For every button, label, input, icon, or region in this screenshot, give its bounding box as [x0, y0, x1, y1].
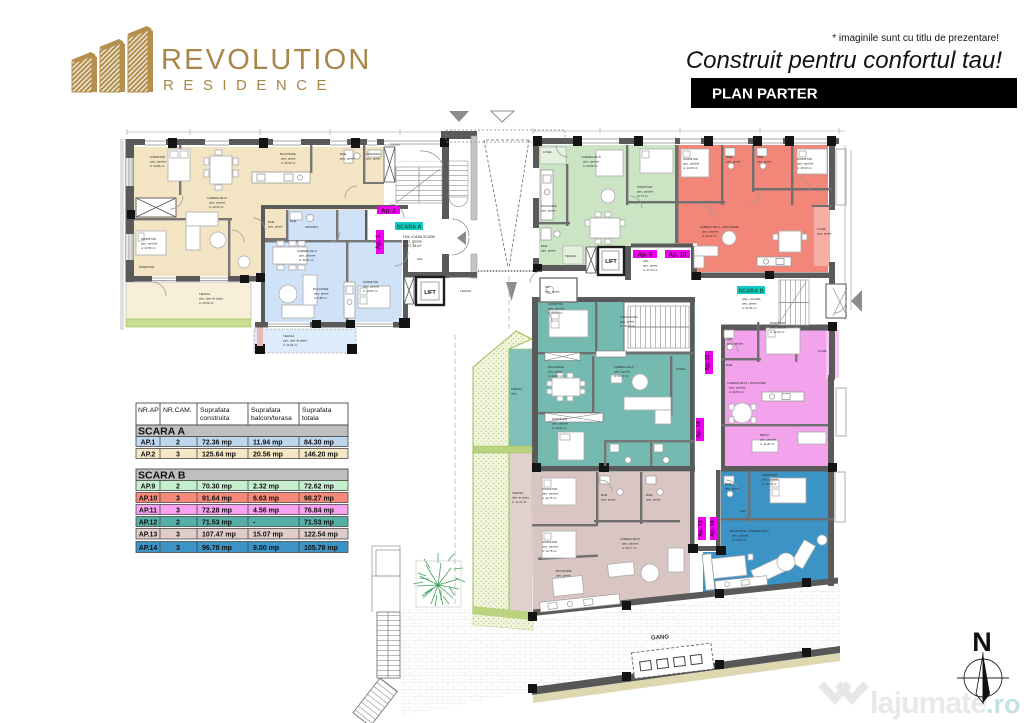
svg-text:parc. parchet: parc. parchet [150, 160, 167, 164]
svg-text:.ro: .ro [986, 689, 1021, 719]
svg-text:BUCATARIE + CAMERA DE ZI: BUCATARIE + CAMERA DE ZI [730, 529, 769, 533]
svg-text:BUCATARIE: BUCATARIE [280, 152, 296, 156]
svg-text:parc. gresie: parc. gresie [541, 249, 556, 253]
svg-text:Ap. 1: Ap. 1 [376, 234, 382, 249]
svg-text:A: 27.48 m²: A: 27.48 m² [403, 244, 422, 248]
svg-text:DORMITOR: DORMITOR [150, 155, 165, 159]
svg-text:15.07 mp: 15.07 mp [253, 532, 283, 539]
svg-text:A: 21.96 m²: A: 21.96 m² [742, 306, 757, 310]
svg-text:3: 3 [176, 495, 180, 502]
svg-text:A: 12.33 m²: A: 12.33 m² [770, 330, 785, 334]
svg-text:107.47 mp: 107.47 mp [202, 532, 236, 539]
svg-text:SCARA A: SCARA A [138, 426, 185, 438]
svg-text:72.28 mp: 72.28 mp [202, 507, 232, 514]
svg-text:DORMITOR: DORMITOR [141, 237, 156, 241]
svg-text:AP.13: AP.13 [139, 532, 158, 539]
svg-text:A: 46.42 m²: A: 46.42 m² [702, 234, 717, 238]
svg-text:BAIE: BAIE [601, 493, 608, 497]
svg-text:BUCATARIE: BUCATARIE [541, 204, 557, 208]
svg-text:parc. parchet: parc. parchet [732, 534, 749, 538]
svg-text:A: 40.33 m²: A: 40.33 m² [209, 205, 224, 209]
svg-text:CAMERA DE ZI + BUCATARIE: CAMERA DE ZI + BUCATARIE [700, 225, 739, 229]
svg-text:A: 11.94 m²: A: 11.94 m² [283, 343, 297, 347]
svg-text:SCARA A: SCARA A [396, 225, 421, 231]
svg-text:parc. gresie: parc. gresie [366, 157, 381, 161]
svg-text:98.27 mp: 98.27 mp [304, 495, 334, 502]
svg-text:parc. parchet: parc. parchet [727, 342, 744, 346]
svg-text:A: 12.86 m²: A: 12.86 m² [150, 164, 165, 168]
svg-text:Ap. 14: Ap. 14 [710, 519, 716, 536]
svg-text:AP.1: AP.1 [141, 439, 156, 446]
svg-text:NR.CAM.: NR.CAM. [163, 407, 192, 414]
svg-text:LOGIE: LOGIE [818, 349, 827, 353]
svg-text:A: 13.81 m²: A: 13.81 m² [363, 289, 378, 293]
svg-text:parc. parchet: parc. parchet [797, 162, 814, 166]
svg-text:parc. parchet: parc. parchet [622, 542, 639, 546]
svg-text:2.32 mp: 2.32 mp [253, 483, 279, 490]
svg-text:DRESSING: DRESSING [366, 152, 381, 156]
svg-text:HOL: HOL [417, 257, 423, 261]
svg-text:parc. gresie: parc. gresie [403, 240, 422, 244]
svg-text:* imaginile sunt cu titlu de p: * imaginile sunt cu titlu de prezentare! [832, 33, 999, 44]
svg-text:96.78 mp: 96.78 mp [202, 545, 232, 552]
svg-text:parc. parchet: parc. parchet [760, 438, 777, 442]
svg-text:parc. gresie: parc. gresie [340, 157, 355, 161]
svg-text:A: 15.40 m²: A: 15.40 m² [797, 166, 812, 170]
svg-text:72.62 mp: 72.62 mp [304, 483, 334, 490]
svg-text:TERASA: TERASA [511, 387, 522, 391]
svg-text:AP.14: AP.14 [139, 545, 158, 552]
svg-text:DORMITOR: DORMITOR [542, 540, 557, 544]
svg-text:parc. gresie: parc. gresie [643, 264, 658, 268]
svg-text:2: 2 [176, 519, 180, 526]
svg-text:parc. gresie: parc. gresie [545, 290, 560, 294]
svg-text:A: 12.65 m²: A: 12.65 m² [683, 166, 698, 170]
svg-text:20.56 mp: 20.56 mp [253, 451, 283, 458]
svg-text:dale de piatra: dale de piatra [512, 496, 529, 500]
svg-text:A: 29.55 m²: A: 29.55 m² [729, 390, 744, 394]
svg-text:3: 3 [176, 545, 180, 552]
svg-text:CAMERA DE ZI: CAMERA DE ZI [207, 196, 227, 200]
svg-text:BAIE: BAIE [340, 152, 347, 156]
svg-text:HOL: HOL [740, 509, 746, 513]
svg-text:AP.12: AP.12 [139, 519, 158, 526]
svg-text:Suprafata: Suprafata [200, 407, 230, 414]
svg-text:A: 36.77 m²: A: 36.77 m² [622, 546, 637, 550]
svg-text:A: 54.82 m²: A: 54.82 m² [732, 538, 747, 542]
svg-text:parc. parchet: parc. parchet [209, 201, 226, 205]
svg-text:A: 15.74 m²: A: 15.74 m² [762, 482, 777, 486]
svg-text:parc. gresie: parc. gresie [541, 209, 556, 213]
svg-text:PLAN PARTER: PLAN PARTER [712, 86, 818, 103]
svg-text:SCARA B: SCARA B [738, 289, 763, 295]
svg-text:parc. gresie: parc. gresie [725, 487, 740, 491]
svg-text:Ap. 11: Ap. 11 [705, 354, 711, 370]
svg-text:A: 39.01 m²: A: 39.01 m² [299, 258, 314, 262]
svg-text:NR.AP: NR.AP [138, 407, 159, 414]
svg-text:DORMITOR: DORMITOR [139, 265, 154, 269]
svg-text:parc. gresie: parc. gresie [268, 225, 283, 229]
svg-text:84.30 mp: 84.30 mp [304, 439, 334, 446]
svg-text:parc. gresie: parc. gresie [314, 292, 329, 296]
svg-text:Ap. 10: Ap. 10 [668, 253, 687, 259]
svg-text:BAIE: BAIE [268, 220, 275, 224]
svg-text:BAIE: BAIE [646, 493, 653, 497]
svg-text:parc. gresie: parc. gresie [548, 370, 563, 374]
svg-text:HOL: HOL [727, 337, 733, 341]
svg-text:Ap. 9: Ap. 9 [638, 253, 653, 259]
svg-text:CAMERA DE ZI: CAMERA DE ZI [614, 365, 634, 369]
svg-text:DORMITOR: DORMITOR [770, 321, 785, 325]
svg-text:11.73 m²: 11.73 m² [637, 194, 648, 198]
svg-text:3: 3 [176, 532, 180, 539]
svg-text:CAMERA DE ZI: CAMERA DE ZI [581, 155, 601, 159]
svg-text:72.36 mp: 72.36 mp [202, 439, 232, 446]
svg-text:parc. gresie: parc. gresie [620, 320, 635, 324]
svg-text:lajumate: lajumate [870, 685, 987, 720]
svg-text:BAIE: BAIE [726, 155, 733, 159]
svg-text:BUCATARIE: BUCATARIE [548, 365, 564, 369]
svg-text:parc. parchet: parc. parchet [141, 242, 158, 246]
svg-text:BUCATARIE: BUCATARIE [313, 287, 329, 291]
svg-text:SCARA B: SCARA B [138, 470, 186, 482]
svg-text:LOGIE: LOGIE [543, 150, 552, 154]
svg-text:HOL+CASA SCARII: HOL+CASA SCARII [403, 235, 435, 239]
svg-text:TERASA: TERASA [283, 334, 294, 338]
svg-text:TERASA: TERASA [512, 491, 523, 495]
svg-text:parc. parchet: parc. parchet [729, 386, 746, 390]
svg-text:TERASA: TERASA [460, 289, 471, 293]
svg-text:parc. parchet: parc. parchet [762, 478, 779, 482]
svg-text:BAIE: BAIE [541, 244, 548, 248]
svg-text:DORMITOR: DORMITOR [542, 487, 557, 491]
svg-text:REVOLUTION: REVOLUTION [161, 44, 372, 76]
svg-text:CAMERA DE ZI: CAMERA DE ZI [297, 249, 317, 253]
svg-text:AP.10: AP.10 [139, 495, 158, 502]
svg-text:A: 47.00 m²: A: 47.00 m² [643, 268, 658, 272]
svg-text:LIFT: LIFT [605, 259, 617, 265]
svg-text:VESTIBUL: VESTIBUL [305, 225, 319, 229]
svg-text:A: 13.03 m²: A: 13.03 m² [548, 311, 563, 315]
svg-text:AP.2: AP.2 [141, 451, 156, 458]
svg-text:parc. parchet: parc. parchet [583, 160, 600, 164]
svg-text:CAMERA DE ZI + BUCATARIE: CAMERA DE ZI + BUCATARIE [727, 381, 766, 385]
svg-text:146.20 mp: 146.20 mp [304, 451, 338, 458]
svg-text:parc. parchet: parc. parchet [637, 190, 654, 194]
svg-text:TERASA: TERASA [565, 254, 576, 258]
svg-text:WP: WP [545, 285, 550, 289]
svg-text:A: 20.56 m²: A: 20.56 m² [199, 301, 214, 305]
svg-text:A: 13.56 m²: A: 13.56 m² [141, 246, 156, 250]
svg-text:BUCATARIE: BUCATARIE [556, 569, 572, 573]
svg-text:parc. gresie: parc. gresie [742, 302, 757, 306]
svg-text:parc. gresie: parc. gresie [556, 574, 571, 578]
svg-text:HOL + SCARA: HOL + SCARA [742, 297, 761, 301]
svg-text:BAIE: BAIE [726, 363, 733, 367]
svg-text:A: 12.78 m²: A: 12.78 m² [542, 549, 557, 553]
svg-text:A: 9.85 m²: A: 9.85 m² [314, 296, 327, 300]
svg-text:6.63 mp: 6.63 mp [253, 495, 279, 502]
svg-text:DORMITOR: DORMITOR [548, 302, 563, 306]
svg-text:SOSEA: SOSEA [676, 367, 686, 371]
svg-text:2: 2 [176, 439, 180, 446]
svg-text:parc. parchet: parc. parchet [614, 370, 631, 374]
svg-text:3: 3 [176, 451, 180, 458]
svg-text:76.84 mp: 76.84 mp [304, 507, 334, 514]
svg-text:9.00 mp: 9.00 mp [253, 545, 279, 552]
svg-text:70.30 mp: 70.30 mp [202, 483, 232, 490]
svg-text:LIFT: LIFT [424, 290, 436, 296]
svg-text:A: 12.02 m²: A: 12.02 m² [548, 374, 563, 378]
svg-text:TERASA: TERASA [199, 292, 210, 296]
svg-text:parc. gresie: parc. gresie [726, 160, 741, 164]
svg-text:parc. gresie: parc. gresie [817, 232, 832, 236]
svg-text:A: 29.86 m²: A: 29.86 m² [583, 164, 598, 168]
svg-text:105.78 mp: 105.78 mp [304, 545, 338, 552]
svg-text:BAIE: BAIE [290, 219, 297, 223]
svg-text:parc. dale de piatra: parc. dale de piatra [283, 339, 307, 343]
svg-text:4.56 mp: 4.56 mp [253, 507, 279, 514]
svg-text:CASA SCARII: CASA SCARII [620, 315, 638, 319]
svg-text:nisip: nisip [511, 392, 517, 396]
svg-text:91.64 mp: 91.64 mp [202, 495, 232, 502]
svg-text:BAIE: BAIE [757, 155, 764, 159]
svg-text:parc. gresie: parc. gresie [757, 160, 772, 164]
svg-text:DORMITOR: DORMITOR [683, 157, 698, 161]
svg-text:DORMITOR: DORMITOR [363, 280, 378, 284]
svg-text:parc. parchet: parc. parchet [770, 326, 787, 330]
svg-text:LOGIE: LOGIE [817, 227, 826, 231]
svg-text:A: 13.93 m²: A: 13.93 m² [552, 426, 567, 430]
svg-text:parc. parchet: parc. parchet [542, 545, 559, 549]
svg-text:parc. dale de piatra: parc. dale de piatra [199, 297, 223, 301]
svg-text:HOL: HOL [643, 259, 649, 263]
svg-text:parc. parchet: parc. parchet [363, 285, 380, 289]
svg-text:BIROU: BIROU [760, 433, 769, 437]
svg-text:71.53 mp: 71.53 mp [304, 519, 334, 526]
svg-text:totala: totala [302, 415, 319, 422]
svg-text:AP.9: AP.9 [141, 483, 156, 490]
svg-text:11.94 mp: 11.94 mp [253, 439, 283, 446]
svg-text:parc. gresie: parc. gresie [646, 498, 661, 502]
svg-text:parc. parchet: parc. parchet [299, 254, 316, 258]
svg-text:Ap. 2: Ap. 2 [381, 209, 396, 215]
svg-text:RESIDENCE: RESIDENCE [163, 77, 336, 94]
svg-text:125.64 mp: 125.64 mp [202, 451, 236, 458]
svg-text:122.54 mp: 122.54 mp [304, 532, 338, 539]
svg-text:Ap. 13: Ap. 13 [698, 520, 704, 537]
svg-text:Ap. 14: Ap. 14 [696, 420, 702, 437]
svg-text:parc. parchet: parc. parchet [542, 492, 559, 496]
svg-text:BAIE: BAIE [725, 482, 732, 486]
svg-text:DORMITOR: DORMITOR [552, 417, 567, 421]
svg-text:A: 11.47 m²: A: 11.47 m² [512, 500, 526, 504]
svg-text:71.53 mp: 71.53 mp [202, 519, 232, 526]
svg-text:Suprafata: Suprafata [251, 407, 281, 414]
svg-text:parc. parchet: parc. parchet [702, 230, 719, 234]
svg-text:parc. gresie: parc. gresie [281, 157, 296, 161]
svg-text:3: 3 [176, 507, 180, 514]
svg-text:Construit pentru confortul tau: Construit pentru confortul tau! [686, 47, 1003, 74]
svg-text:A: 16.04 m²: A: 16.04 m² [620, 324, 635, 328]
svg-text:A: 11.28 m²: A: 11.28 m² [760, 442, 774, 446]
svg-text:DORMITOR: DORMITOR [797, 157, 812, 161]
svg-text:GANG: GANG [651, 634, 670, 641]
svg-text:A: 20.57 m²: A: 20.57 m² [614, 374, 629, 378]
svg-text:parc. parchet: parc. parchet [552, 422, 569, 426]
svg-text:A: 15.52 m²: A: 15.52 m² [281, 161, 296, 165]
svg-text:2: 2 [176, 483, 180, 490]
svg-text:DORMITOR: DORMITOR [762, 473, 777, 477]
svg-text:construita: construita [200, 415, 230, 422]
svg-text:balcon/terasa: balcon/terasa [251, 415, 292, 422]
svg-text:parc. parchet: parc. parchet [548, 307, 565, 311]
svg-text:N: N [972, 627, 992, 657]
svg-text:parc. gresie: parc. gresie [601, 498, 616, 502]
svg-text:CAMERA DE ZI: CAMERA DE ZI [620, 537, 640, 541]
svg-text:AP.11: AP.11 [139, 507, 157, 514]
svg-text:A: 12.75 m²: A: 12.75 m² [542, 496, 557, 500]
svg-text:parc. parchet: parc. parchet [683, 162, 700, 166]
svg-text:DORMITOR: DORMITOR [637, 185, 652, 189]
svg-text:Suprafata: Suprafata [302, 407, 332, 414]
